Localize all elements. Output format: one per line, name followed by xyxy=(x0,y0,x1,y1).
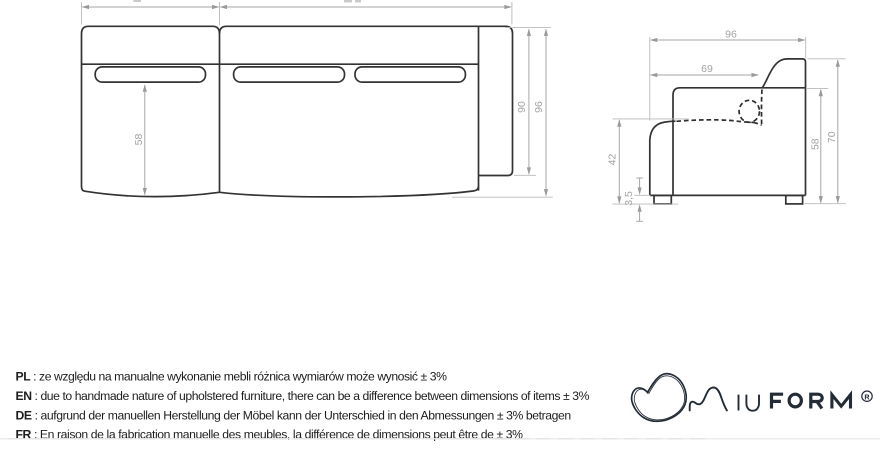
svg-text:R: R xyxy=(864,392,870,401)
svg-text:69: 69 xyxy=(701,63,713,75)
svg-text:58: 58 xyxy=(133,134,145,146)
svg-text:58: 58 xyxy=(810,138,822,150)
svg-text:42: 42 xyxy=(606,154,618,166)
svg-text:96: 96 xyxy=(533,101,545,113)
svg-text:3,5: 3,5 xyxy=(623,191,635,206)
svg-text:70: 70 xyxy=(826,131,838,143)
svg-text:90: 90 xyxy=(516,101,528,113)
svg-text:DE : aufgrund der manuellen He: DE : aufgrund der manuellen Herstellung … xyxy=(16,408,571,422)
svg-text:PL : ze względu na manualne wy: PL : ze względu na manualne wykonanie me… xyxy=(16,370,448,384)
svg-text:96: 96 xyxy=(725,29,737,41)
svg-text:EN : due to handmade nature of: EN : due to handmade nature of upholster… xyxy=(16,389,590,403)
